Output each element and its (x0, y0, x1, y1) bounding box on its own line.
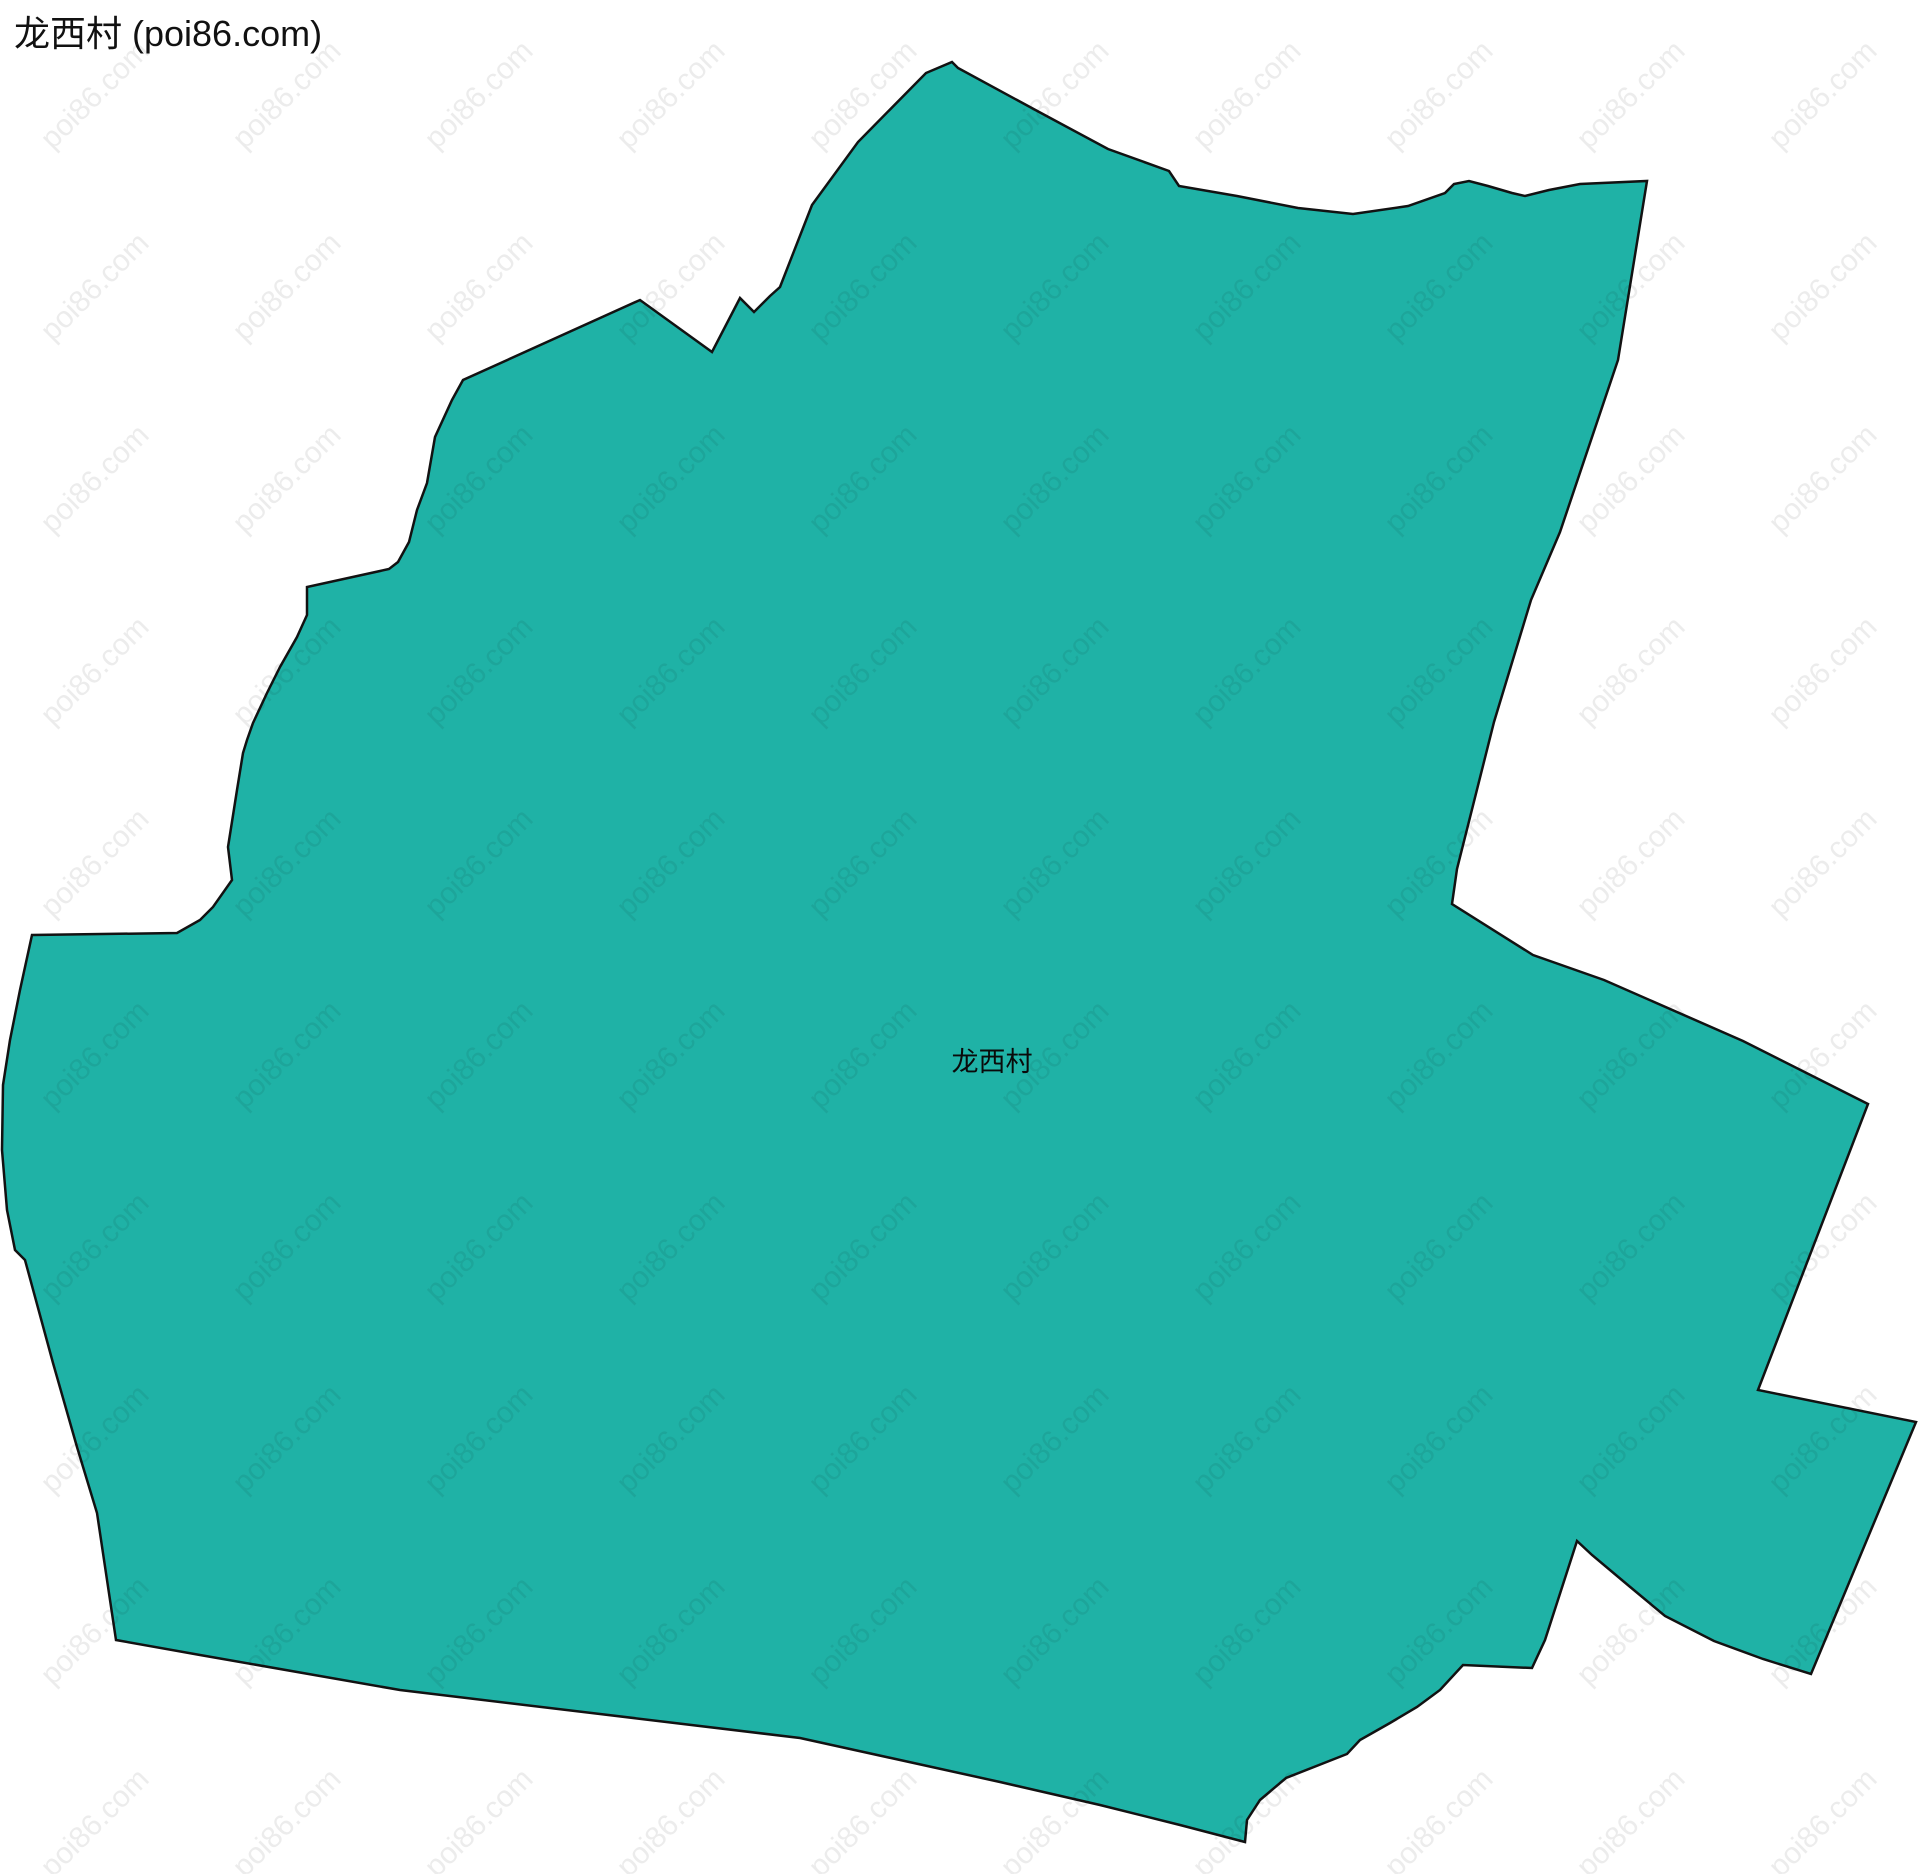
map-canvas: poi86.com 龙西村 (poi86.com) 龙西村 (0, 0, 1920, 1874)
page-title: 龙西村 (poi86.com) (14, 13, 322, 54)
region-label: 龙西村 (952, 1047, 1033, 1077)
watermark-overlay (0, 0, 1920, 1874)
map-svg: poi86.com 龙西村 (poi86.com) 龙西村 (0, 0, 1920, 1874)
